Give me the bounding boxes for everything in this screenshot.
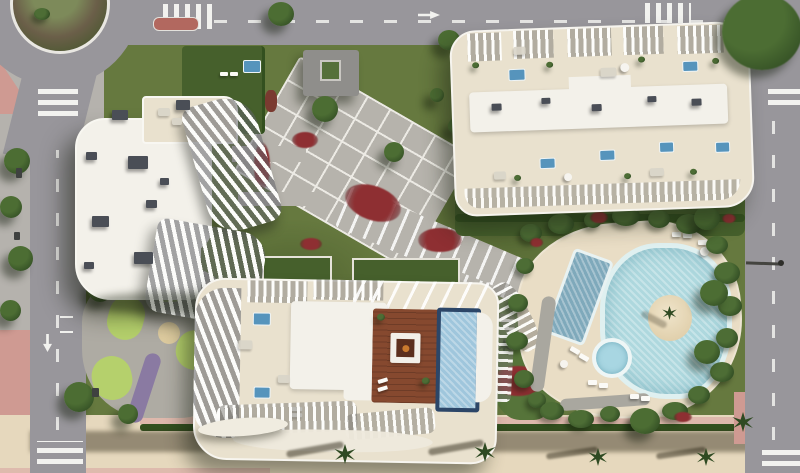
perimeter-tree [694, 340, 720, 364]
left-street-laneline [56, 150, 59, 430]
sun-lounger [220, 72, 228, 76]
right-avenue-centerline [772, 110, 775, 440]
perimeter-tree [700, 280, 728, 306]
street-tree [8, 246, 33, 271]
rooftop-unit [128, 156, 148, 169]
aerial-render [0, 0, 800, 473]
shrub [600, 406, 620, 422]
spa-pool [592, 338, 632, 378]
shrub [548, 214, 574, 234]
terrace-furniture [600, 67, 616, 77]
street-tree [0, 300, 21, 321]
shrub [516, 258, 534, 274]
sun-lounger [641, 396, 650, 401]
sun-lounger [230, 72, 238, 76]
firepit [402, 345, 409, 352]
flower-bed [300, 238, 322, 250]
crosswalk-right-top [768, 84, 800, 105]
shrub [706, 236, 728, 254]
rooftop-unit [86, 152, 97, 160]
terrace-furniture [278, 375, 290, 383]
lawn-plunge-pool [243, 60, 261, 73]
shrub [568, 410, 594, 428]
trash-bin [92, 388, 99, 397]
flower-bed [292, 132, 318, 148]
shrub [514, 370, 534, 388]
sun-lounger [630, 394, 639, 399]
shrub [506, 332, 528, 350]
sun-lounger [672, 232, 681, 237]
terrace-furniture [238, 340, 252, 349]
garden-tree [312, 96, 338, 122]
rooftop-unit [160, 178, 169, 185]
terrace-plunge-pool [253, 386, 270, 398]
parking-bay-mark-1 [60, 316, 73, 318]
terrace-plunge-pool [253, 312, 271, 325]
roundabout-shrub [34, 8, 50, 20]
terrace-plunge-pool [539, 158, 555, 170]
flower-bed [674, 412, 692, 422]
shrub [688, 386, 710, 404]
red-cypress [265, 90, 277, 112]
trash-bin [14, 232, 20, 240]
shrub [648, 210, 670, 228]
terrace-plunge-pool [682, 61, 698, 73]
roof-vent [541, 98, 550, 104]
terrace-plunge-pool [599, 149, 615, 161]
sun-lounger [588, 380, 597, 385]
roof-vent [592, 104, 602, 111]
pergola [567, 28, 612, 58]
shrub [716, 328, 738, 348]
pergola [467, 32, 502, 61]
perimeter-tree [694, 206, 720, 230]
parasol [560, 360, 568, 368]
pergola [677, 25, 724, 55]
crosswalk-top-right [645, 3, 691, 23]
crosswalk-left-lower [37, 441, 83, 464]
terrace-plunge-pool [508, 69, 525, 82]
crosswalk-right-bottom [762, 448, 800, 466]
median-island [153, 17, 199, 31]
terrace-plant [422, 377, 430, 384]
rooftop-unit [112, 110, 128, 120]
street-lamp-head [778, 260, 784, 266]
terrace-plunge-pool [715, 141, 730, 153]
rooftop-unit [84, 262, 94, 269]
corner-tree [722, 0, 800, 70]
garden-tree [430, 88, 444, 102]
terrace-plunge-pool [659, 141, 674, 153]
shrub [540, 402, 564, 420]
pergola [623, 26, 664, 55]
roof-vent [691, 98, 701, 105]
roof-vent [491, 103, 501, 110]
building-b-roof-step [569, 75, 631, 91]
pergola [247, 280, 307, 303]
terrace-furniture [514, 47, 526, 55]
flower-bed [530, 238, 543, 247]
flower-bed [590, 212, 608, 223]
terrace-furniture [172, 118, 182, 125]
garden-tree [118, 404, 138, 424]
building-c-east-rim [475, 312, 493, 402]
garden-tree [384, 142, 404, 162]
terrace-furniture [494, 171, 506, 179]
flower-bed [722, 214, 736, 223]
sand-circle [158, 322, 180, 344]
street-tree [0, 196, 22, 218]
trash-bin [16, 168, 22, 178]
parking-bay-mark-2 [60, 331, 73, 333]
shrub [710, 362, 734, 382]
pavilion-courtyard [320, 60, 341, 81]
terrace-furniture [650, 168, 664, 176]
terrace-furniture [158, 108, 170, 116]
rooftop-infinity-pool [435, 308, 481, 413]
street-tree [64, 382, 94, 412]
promenade-tree [630, 408, 660, 434]
garden-tree [268, 2, 294, 26]
rooftop-unit [92, 216, 109, 227]
building-b [449, 21, 751, 213]
terrace-plant [377, 314, 385, 321]
rooftop-unit [146, 200, 157, 208]
shrub [508, 294, 528, 312]
rooftop-unit [176, 100, 190, 110]
roof-vent [647, 96, 656, 102]
rooftop-unit [134, 252, 153, 264]
sun-lounger [599, 383, 608, 388]
